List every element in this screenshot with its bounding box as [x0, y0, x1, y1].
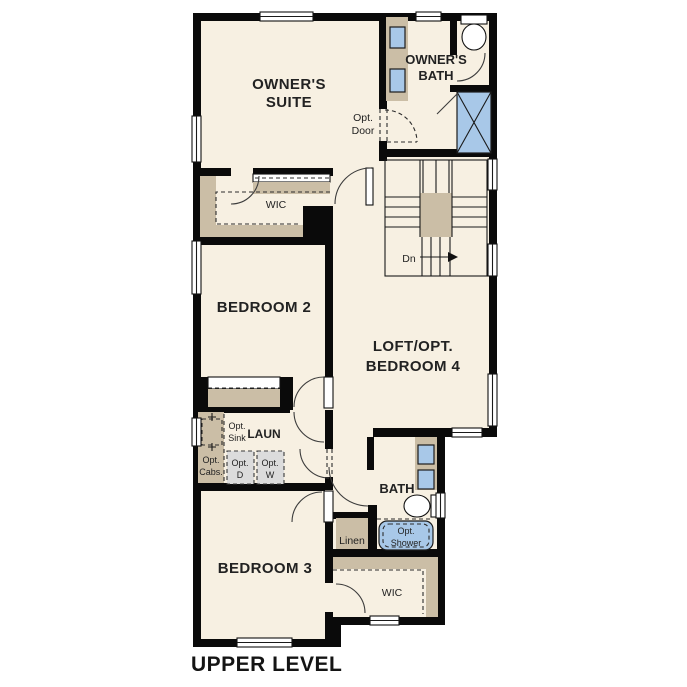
label-opt-sink-2: Sink — [228, 433, 246, 443]
label-stairs-down: Dn — [402, 253, 416, 265]
owners-suite-door-leaf — [366, 168, 373, 205]
wall — [325, 612, 333, 643]
label-owners-suite-2: SUITE — [266, 94, 312, 111]
stair-landing — [420, 193, 452, 237]
wall — [325, 410, 333, 449]
window-top-bath — [416, 12, 441, 21]
window-top-suite — [260, 12, 313, 21]
wall — [193, 237, 333, 245]
label-opt-sink-1: Opt. — [228, 421, 245, 431]
window-right-stairs-2 — [488, 244, 497, 276]
label-opt-cabs-2: Cabs. — [199, 467, 223, 477]
wall — [325, 477, 333, 490]
wall — [280, 377, 293, 410]
bedroom2-closet-shelf-front — [208, 377, 280, 389]
bedroom3-door-leaf — [324, 491, 333, 522]
bath-toilet-bowl — [404, 495, 430, 517]
label-opt-door-2: Door — [352, 125, 375, 137]
label-bath: BATH — [379, 481, 414, 496]
label-opt-washer-1: Opt. — [261, 458, 278, 468]
wall — [193, 168, 231, 176]
window-left-suite — [192, 116, 201, 162]
label-wic-upper: WIC — [266, 199, 287, 211]
label-bedroom2: BEDROOM 2 — [217, 299, 311, 316]
label-opt-cabs-1: Opt. — [202, 455, 219, 465]
label-wic-lower: WIC — [382, 587, 403, 599]
window-right-loft — [488, 374, 497, 426]
window-right-stairs-1 — [488, 159, 497, 190]
floor-plan-page: OWNER'S SUITE OWNER'S BATH Opt. Door WIC… — [0, 0, 687, 687]
owners-bath-sink-1 — [390, 27, 405, 48]
owners-wic-shelf-bottom — [200, 225, 303, 237]
window-right-bath — [436, 493, 445, 518]
label-opt-shower-1: Opt. — [397, 526, 414, 536]
owners-toilet-tank — [461, 15, 487, 24]
window-bottom-wic — [370, 616, 399, 625]
wall — [325, 245, 333, 377]
label-bedroom3: BEDROOM 3 — [218, 560, 312, 577]
wic-lower-shelf-right — [426, 557, 438, 617]
label-laundry: LAUN — [247, 427, 280, 441]
window-left-laundry — [192, 418, 201, 446]
bath-sink-1 — [418, 445, 434, 464]
label-owners-bath-2: BATH — [418, 68, 453, 83]
bedroom2-closet-shelf — [208, 389, 280, 407]
label-linen: Linen — [339, 535, 365, 547]
label-loft-1: LOFT/OPT. — [373, 338, 453, 355]
wall — [368, 505, 377, 551]
wall — [303, 206, 333, 238]
wall — [333, 512, 369, 519]
wic-lower-shelf-top — [333, 557, 438, 569]
window-left-bedroom2 — [192, 241, 201, 294]
label-opt-dryer-2: D — [237, 470, 244, 480]
owners-bath-sink-2 — [390, 69, 405, 92]
label-loft-2: BEDROOM 4 — [366, 358, 461, 375]
label-owners-bath-1: OWNER'S — [405, 52, 467, 67]
bath-sink-2 — [418, 470, 434, 489]
bedroom2-door-leaf — [324, 377, 333, 408]
floor-plan-canvas: OWNER'S SUITE OWNER'S BATH Opt. Door WIC… — [0, 0, 687, 687]
wall — [198, 377, 208, 410]
wall — [325, 520, 333, 583]
wall — [450, 85, 497, 92]
label-opt-shower-2: Shower — [391, 538, 422, 548]
label-opt-washer-2: W — [266, 470, 275, 480]
window-bottom-loft — [452, 428, 482, 437]
wall — [367, 437, 374, 470]
label-opt-dryer-1: Opt. — [231, 458, 248, 468]
label-owners-suite-1: OWNER'S — [252, 76, 326, 93]
wall — [379, 13, 387, 109]
plan-title: UPPER LEVEL — [191, 653, 342, 676]
window-bottom-bedroom3 — [237, 638, 292, 647]
wall — [450, 13, 457, 55]
owners-toilet-bowl — [462, 24, 486, 50]
label-opt-door-1: Opt. — [353, 112, 373, 124]
